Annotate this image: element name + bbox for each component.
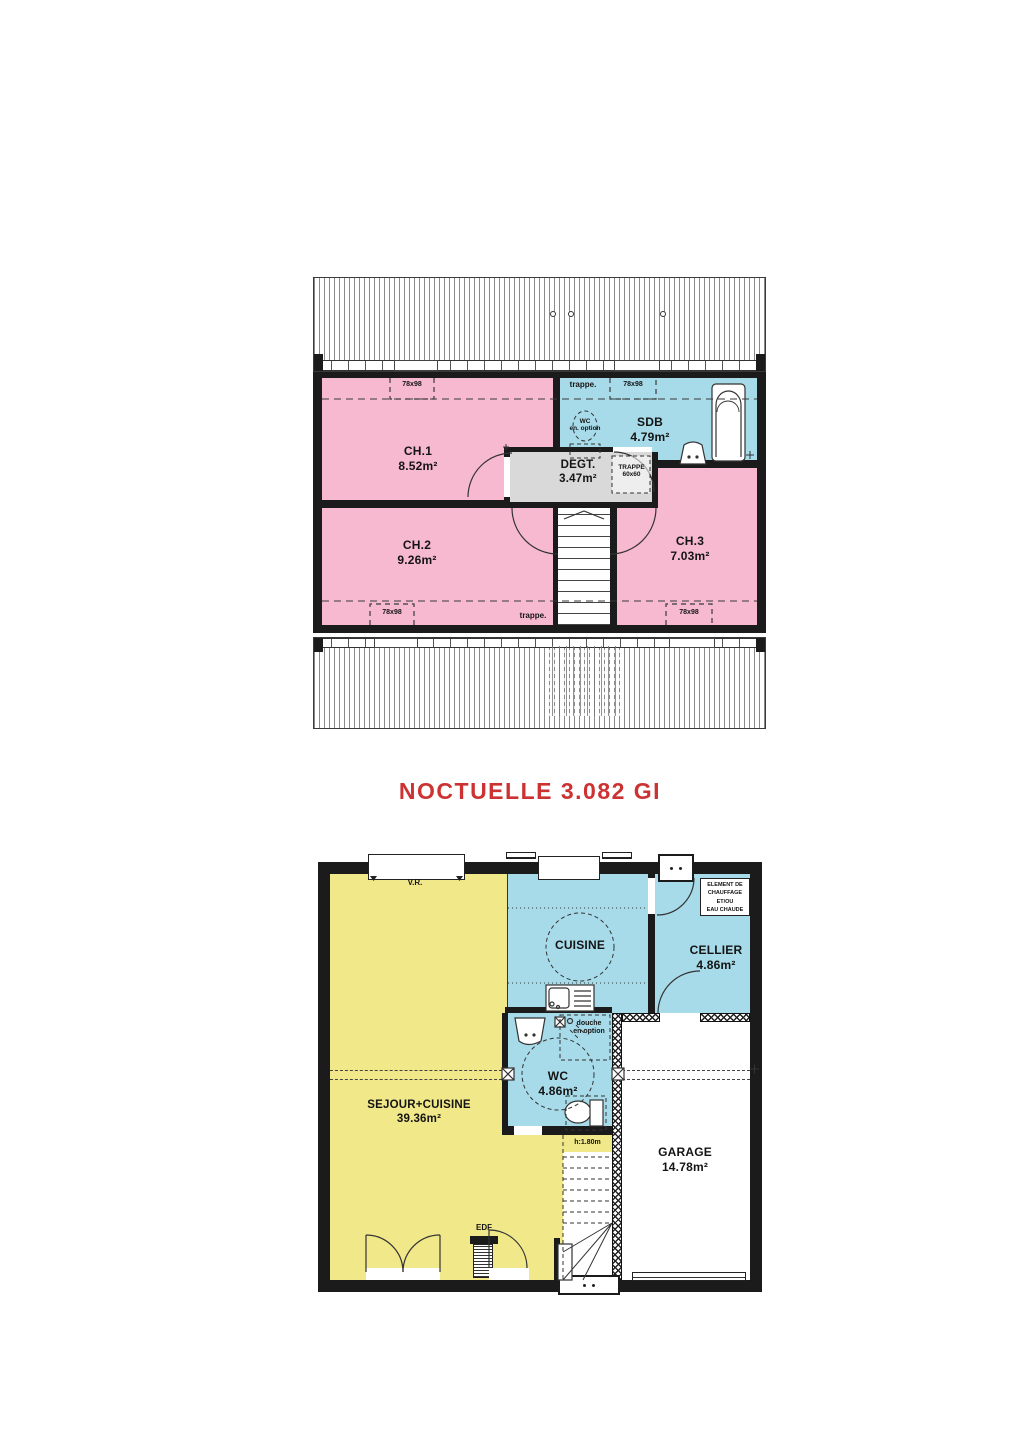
room-area: 4.79m² [605,430,695,445]
room-area: 7.03m² [645,549,735,564]
roof-corner-stub-left [314,638,323,652]
section-line [330,1079,502,1080]
room-name: SEJOUR+CUISINE [367,1099,470,1111]
room-label-degt: DEGT. 3.47m² [533,458,623,486]
roof-window-notch [374,638,418,648]
trappe-60x60-label: TRAPPE 60x60 [613,464,650,479]
room-name: CELLIER [690,943,743,957]
roof-corner-stub-right [756,638,765,652]
garage-partition-hatch [612,1013,622,1280]
wall [656,460,757,467]
room-label-sdb: SDB 4.79m² [605,415,695,444]
upper-floor-plan: CH.1 8.52m² CH.2 9.26m² CH.3 7.03m² SDB … [313,372,766,633]
edf-label: EDF [464,1224,504,1233]
roof-vent-icon [568,311,574,317]
room-label-cuisine: CUISINE [533,938,627,953]
roof-vent-icon [550,311,556,317]
room-label-ch3: CH.3 7.03m² [645,534,735,563]
room-name: CUISINE [555,938,605,952]
room-sejour [330,874,508,1280]
room-name: CH.2 [403,538,431,552]
wall [505,1007,612,1013]
douche-option-label: douche en option [566,1020,612,1036]
ground-floor-plan: ELEMENT DE CHAUFFAGE ET/OU EAU CHAUDE [318,862,762,1292]
edf-panel-top [470,1236,498,1244]
staircase-upper [558,508,610,625]
room-name: CH.1 [404,444,432,458]
roof-window-size-label: 78x98 [370,609,414,617]
room-area: 39.36m² [358,1112,480,1126]
room-area: 4.86m² [676,958,756,973]
door-dot [583,1284,586,1287]
roof-vent-icon [660,311,666,317]
door-opening [648,878,655,914]
door-dot [679,867,682,870]
trappe-bottom-label: trappe. [503,612,563,621]
shutter-box [506,852,536,859]
section-line [330,1070,502,1071]
room-area: 9.26m² [372,553,462,568]
roof-window-size-label: 78x98 [390,381,434,389]
staircase-ground [563,1152,612,1280]
kitchen-window [538,856,600,880]
wall [502,1013,508,1135]
room-name: CH.3 [676,534,704,548]
room-name: WC [548,1069,568,1083]
stair-projection-dashes [546,646,622,716]
room-label-ch1: CH.1 8.52m² [373,444,463,473]
entrance-door-opening [489,1268,529,1280]
roof-corner-stub-right [756,354,765,371]
wall [652,452,658,502]
room-label-wc: WC 4.86m² [523,1069,593,1098]
door-opening [514,1126,542,1135]
door-opening [660,1013,700,1022]
roof-corner-stub-left [314,354,323,371]
room-area: 4.86m² [523,1084,593,1099]
room-label-cellier: CELLIER 4.86m² [676,943,756,972]
section-line [622,1079,750,1080]
roof-window-notch [394,360,438,371]
upper-roof-bottom [313,637,766,729]
wall [504,502,558,508]
stair-height-label: h:1.80m [563,1139,612,1147]
roof-window-size-label: 78x98 [666,609,712,617]
wall [554,1238,560,1280]
sejour-window [368,854,465,880]
room-label-ch2: CH.2 9.26m² [372,538,462,567]
door-opening [613,447,652,452]
room-area: 3.47m² [533,472,623,486]
room-boundary-line [507,874,508,1013]
roof-window-notch [614,360,660,371]
room-name: DEGT. [561,459,596,471]
room-name: SDB [637,415,663,429]
heater-info-box: ELEMENT DE CHAUFFAGE ET/OU EAU CHAUDE [700,878,750,916]
wall [613,502,658,508]
upper-roof-top [313,277,766,372]
garage-door-line [633,1277,745,1278]
room-label-sejour: SEJOUR+CUISINE 39.36m² [358,1098,480,1126]
front-door [558,1275,620,1295]
shutter-box [602,852,632,859]
wc-option-label: WC en. option [557,418,613,433]
wall [610,502,617,633]
room-area: 8.52m² [373,459,463,474]
plan-title: NOCTUELLE 3.082 GI [286,778,774,805]
roof-eave-band [314,360,765,371]
floorplan-page: { "title": "NOCTUELLE 3.082 GI", "colors… [0,0,1024,1449]
roof-window-notch [669,638,715,648]
room-label-garage: GARAGE 14.78m² [645,1145,725,1174]
door-dot [670,867,673,870]
trappe-top-label: trappe. [553,381,613,390]
garage-partition-hatch [700,1013,750,1022]
french-door-opening [366,1268,440,1280]
roof-window-size-label: 78x98 [610,381,656,389]
door-dot [592,1284,595,1287]
section-line [622,1070,750,1071]
room-name: GARAGE [658,1145,712,1159]
room-area: 14.78m² [645,1160,725,1175]
garage-partition-hatch [622,1013,660,1022]
garage-door [632,1272,746,1281]
shutter-label: V.R. [380,879,450,888]
cellier-service-door [658,854,694,882]
door-opening [504,457,510,497]
